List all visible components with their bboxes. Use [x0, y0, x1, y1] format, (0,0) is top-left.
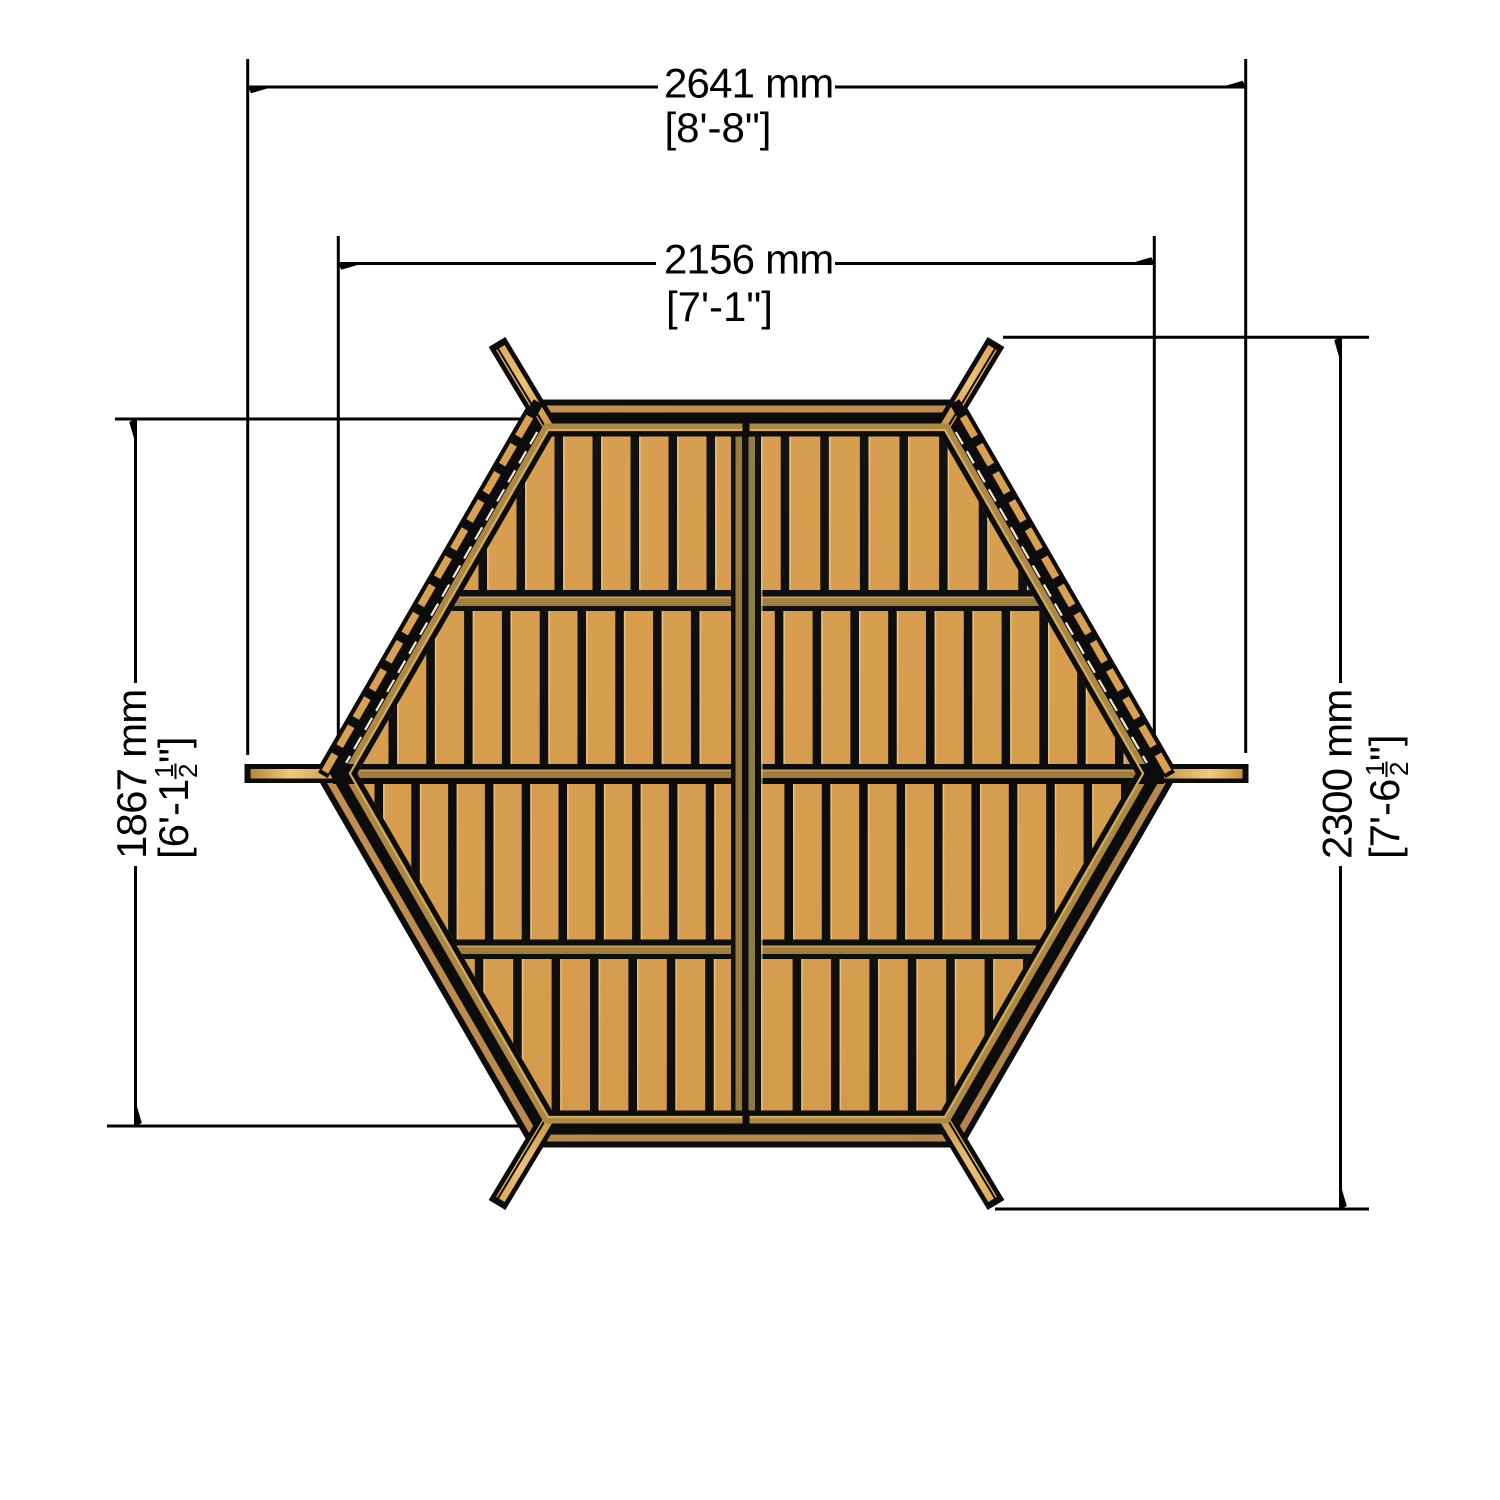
svg-text:"]: "] [150, 736, 197, 763]
svg-text:[8'-8"]: [8'-8"] [665, 104, 772, 151]
svg-text:1867 mm: 1867 mm [108, 690, 155, 859]
svg-text:2300 mm: 2300 mm [1314, 690, 1361, 859]
svg-text:2156 mm: 2156 mm [664, 236, 833, 283]
svg-text:"]: "] [1361, 734, 1408, 761]
svg-text:[7'-1"]: [7'-1"] [666, 283, 773, 330]
svg-text:[6'-1: [6'-1 [150, 779, 197, 859]
svg-text:2641 mm: 2641 mm [664, 60, 833, 107]
svg-text:2: 2 [173, 764, 203, 778]
svg-text:[7'-6: [7'-6 [1361, 779, 1408, 859]
svg-text:2: 2 [1384, 762, 1414, 776]
